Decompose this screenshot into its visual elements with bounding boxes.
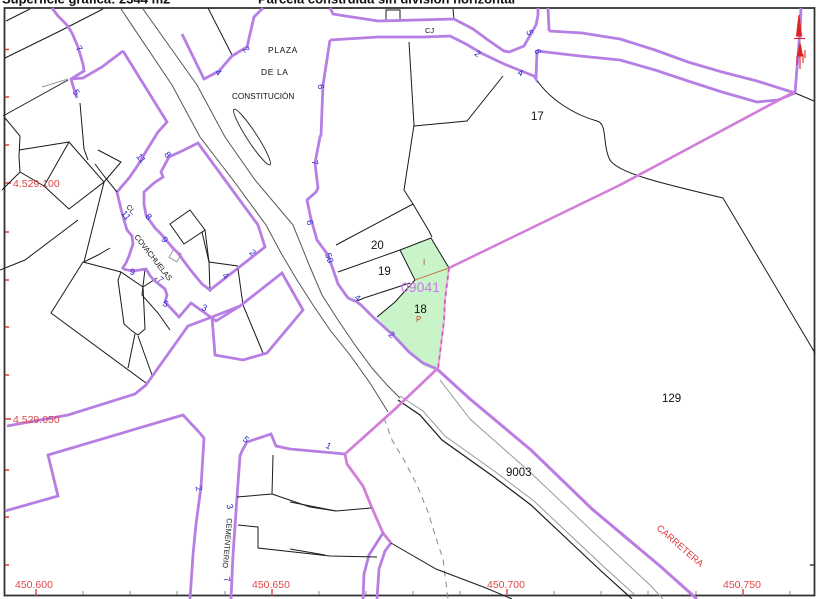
svg-text:129: 129 <box>662 393 681 405</box>
svg-text:19: 19 <box>378 266 391 278</box>
svg-text:450.750: 450.750 <box>723 579 761 591</box>
svg-text:PLAZA: PLAZA <box>268 45 298 55</box>
svg-text:450.700: 450.700 <box>487 579 525 591</box>
svg-text:Superficie gráfica: 2344 m2: Superficie gráfica: 2344 m2 <box>2 0 170 7</box>
svg-text:09041: 09041 <box>401 279 440 295</box>
svg-text:P: P <box>416 315 421 324</box>
svg-text:CJ: CJ <box>425 26 434 35</box>
svg-text:450.600: 450.600 <box>15 579 53 591</box>
svg-text:I: I <box>423 258 425 267</box>
svg-text:9003: 9003 <box>506 467 532 479</box>
svg-text:4.529.100: 4.529.100 <box>13 178 60 190</box>
svg-text:CONSTITUCIÓN: CONSTITUCIÓN <box>232 91 294 101</box>
svg-text:17: 17 <box>531 111 544 123</box>
svg-text:Parcela construida sin divisió: Parcela construida sin división horizont… <box>258 0 515 7</box>
svg-text:4.529.050: 4.529.050 <box>13 414 60 426</box>
svg-text:20: 20 <box>371 240 384 252</box>
svg-text:450.650: 450.650 <box>252 579 290 591</box>
svg-text:DE LA: DE LA <box>261 67 289 77</box>
